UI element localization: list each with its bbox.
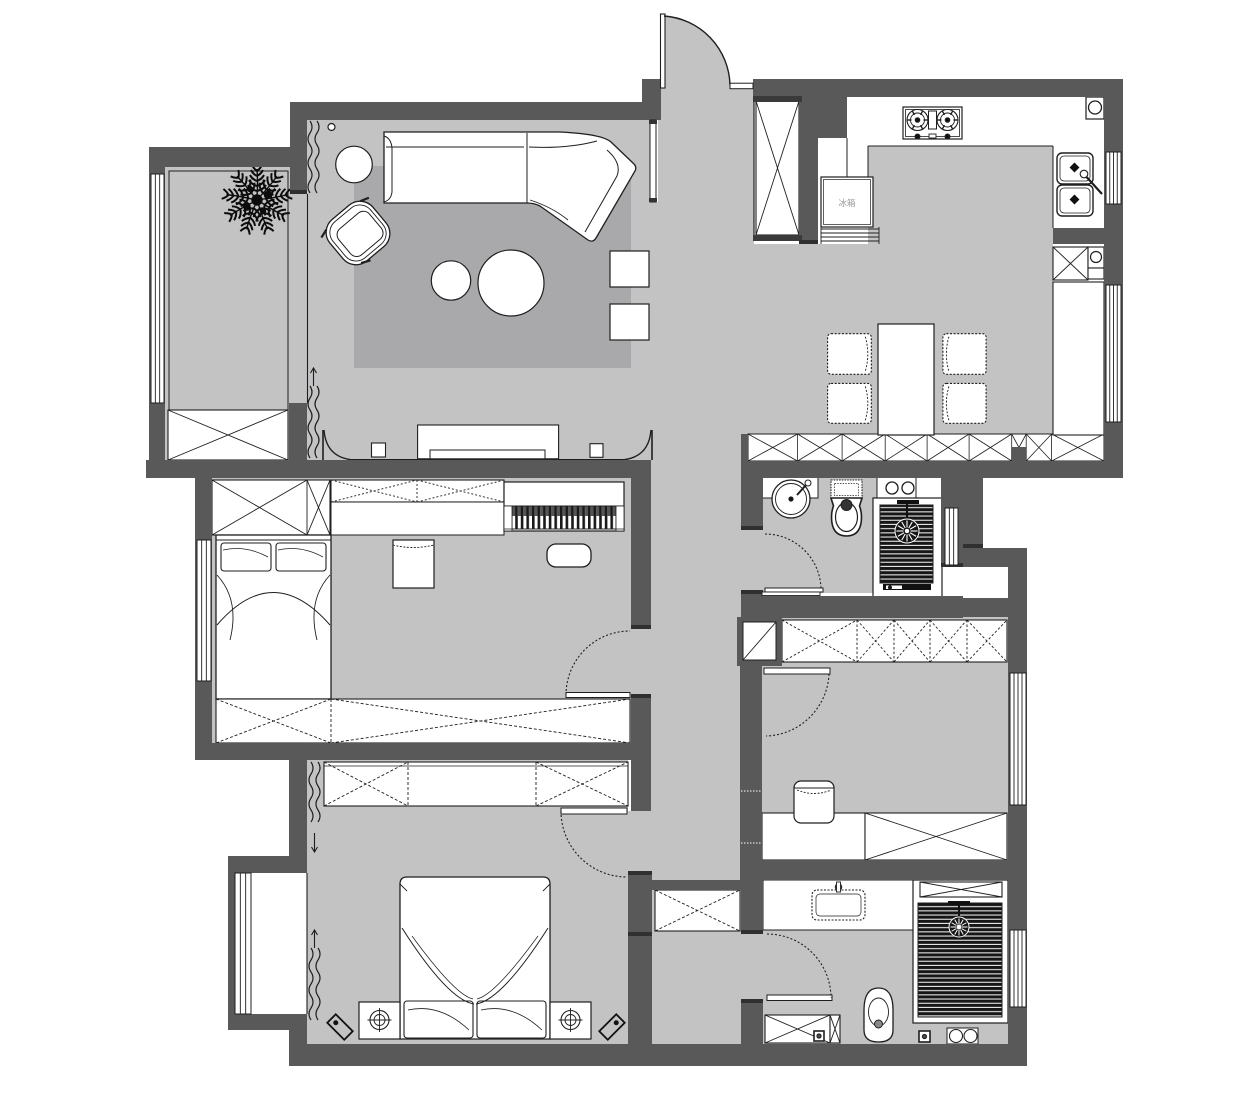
- svg-text:冰箱: 冰箱: [838, 198, 856, 208]
